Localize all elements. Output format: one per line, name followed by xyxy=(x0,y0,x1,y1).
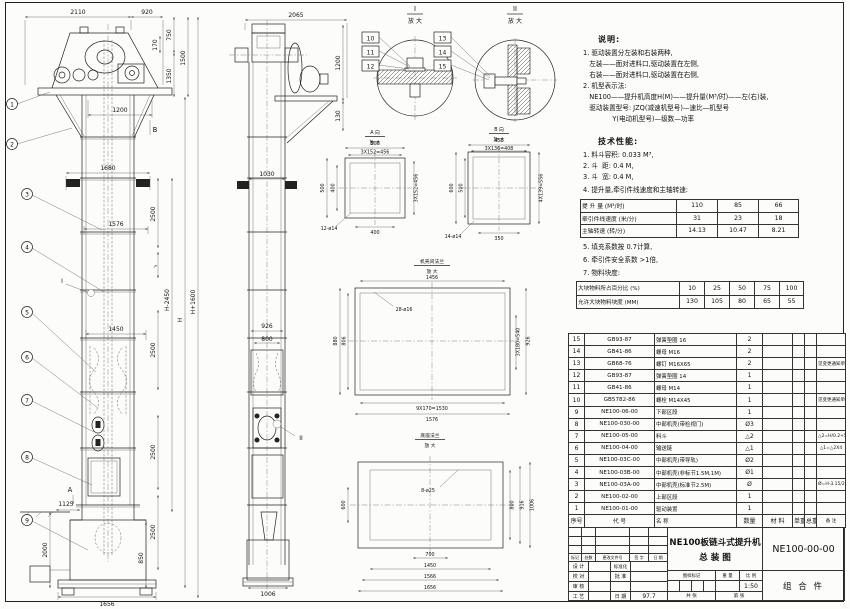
table-cell: 单重 xyxy=(793,515,805,527)
dim-label: 3X152=456 xyxy=(361,150,390,156)
table-cell xyxy=(763,346,793,358)
table-cell: 2 xyxy=(737,346,763,358)
table-cell: Ø xyxy=(737,479,763,491)
dim-label: 1456 xyxy=(426,275,438,281)
table-cell: 25 xyxy=(705,282,730,296)
table-row: 4NE100-03B-00中部机壳(非标节1.5M,1M)Ø1 xyxy=(569,467,846,479)
dim-label: 400 xyxy=(331,183,337,192)
table-cell: 名 称 xyxy=(655,515,737,527)
table-row: 7NE100-05-00料斗△2△2=H/0.2+5.75 xyxy=(569,430,846,442)
table-row: 12GB93-87弹簧垫圈 141 xyxy=(569,370,846,382)
table-row: 提 升 量 (M³/时)1108566 xyxy=(581,200,799,213)
casing-column xyxy=(66,24,150,562)
view-a-flange: A 向 放 大 500 3X152=456 500 400 3X152=456 … xyxy=(320,129,420,236)
dim-label: 806 xyxy=(342,336,348,345)
balloon-label: 12 xyxy=(367,64,375,71)
revision-cell xyxy=(568,527,582,554)
table-cell: 1 xyxy=(737,406,763,418)
table-row: 允许大块物料块度 (MM)130105806555 xyxy=(577,295,804,309)
balloon-label: 5 xyxy=(25,310,29,317)
view-title: 底座法兰 xyxy=(420,432,439,439)
table-cell: 中部机壳(标准节2.5M) xyxy=(655,479,737,491)
table-cell: 13 xyxy=(569,358,585,370)
table-cell xyxy=(763,406,793,418)
table-cell xyxy=(763,418,793,430)
table-cell: 6 xyxy=(569,442,585,454)
main-elevation-view: 2110 920 1200 B 1680 1576 1450 1125 2000… xyxy=(0,0,215,609)
table-cell: 66 xyxy=(759,200,799,213)
role-process: 工 艺 xyxy=(568,591,589,601)
table-cell: 85 xyxy=(718,200,759,213)
hole-callout: 8-ø25 xyxy=(421,488,435,494)
table-cell xyxy=(763,479,793,491)
date-value: 97.7 xyxy=(630,591,668,601)
table-cell xyxy=(817,418,846,430)
tech-item: 3. 斗 宽: 0.4 M, xyxy=(583,172,633,183)
table-cell xyxy=(805,358,817,370)
table-cell: 数量 xyxy=(737,515,763,527)
table-cell xyxy=(763,334,793,346)
table-row: 11GB41-86螺母 M141 xyxy=(569,382,846,394)
balloon-label: 4 xyxy=(25,245,29,252)
note-line: 左装——面对进料口,驱动装置在左侧, xyxy=(583,59,699,70)
dim-label: 1450 xyxy=(424,563,436,569)
table-cell: 10 xyxy=(680,282,705,296)
dim-label: 600 xyxy=(449,183,455,192)
note-line: 2. 机型表示法: xyxy=(583,81,627,92)
table-cell: Ø2 xyxy=(737,454,763,466)
table-cell: 65 xyxy=(755,295,780,309)
dim-label: 1030 xyxy=(259,171,274,178)
table-cell: 5 xyxy=(569,454,585,466)
table-cell: 材 料 xyxy=(763,515,793,527)
table-cell xyxy=(805,442,817,454)
table-row: 9NE100-06-00下部区段1 xyxy=(569,406,846,418)
table-row: 大块物料所占百分比 (%)10255075100 xyxy=(577,282,804,296)
table-row: 3NE100-03A-00中部机壳(标准节2.5M)ØØ=H-3.15/2.5 xyxy=(569,479,846,491)
dimensions: 2110 920 1200 B 1680 1576 1450 1125 2000… xyxy=(25,9,198,608)
dim-label: 500 xyxy=(459,183,465,192)
dim-label: 3X136=408 xyxy=(485,146,514,152)
table-cell: GB5782-86 xyxy=(585,394,655,406)
casing-flange-detail: 机壳间法兰 放 大 1456 28-ø16 880 806 3X180=540 … xyxy=(333,258,532,423)
view-b-flange: B 向 放 大 450 3X136=408 600 500 4X139=556 … xyxy=(445,126,545,242)
title-block: 标记 处数 更改文件号 签 字 日 期 设 计 标准化 校 对 批 准 审 核 … xyxy=(568,527,845,601)
table-cell: 2 xyxy=(737,358,763,370)
bom-table: 15GB93-87弹簧垫圈 16214GB41-86螺母 M16213GB68-… xyxy=(568,333,846,528)
table-cell: 螺母 M16 xyxy=(655,346,737,358)
table-cell: 牵引件线速度 (米/分) xyxy=(581,212,677,225)
table-cell: 1 xyxy=(737,382,763,394)
table-cell: 大块物料所占百分比 (%) xyxy=(577,282,680,296)
table-cell: 提 升 量 (M³/时) xyxy=(581,200,677,213)
note-line: Y(电动机型号)—级数—功率 xyxy=(583,114,694,125)
dim-label: 1576 xyxy=(426,417,438,423)
table-cell: 130 xyxy=(680,295,705,309)
product-title: NE100板链斗式提升机 xyxy=(669,536,760,548)
table-cell xyxy=(805,382,817,394)
dim-label: 1500 xyxy=(180,50,187,65)
table-cell xyxy=(793,430,805,442)
table-cell: 弹簧垫圈 14 xyxy=(655,370,737,382)
dim-label: 2000 xyxy=(42,542,49,557)
table-cell xyxy=(805,454,817,466)
table-cell xyxy=(763,430,793,442)
table-cell xyxy=(793,346,805,358)
table-cell: 总重 xyxy=(805,515,817,527)
dim-label: 1680 xyxy=(100,165,115,172)
table-cell: 中部机壳(非标节1.5M,1M) xyxy=(655,467,737,479)
hole-callout: 28-ø16 xyxy=(396,307,413,313)
table-cell: 80 xyxy=(730,295,755,309)
table-cell: 2 xyxy=(737,334,763,346)
dim-label: 2500 xyxy=(150,524,157,539)
view-title: A 向 xyxy=(370,129,380,136)
table-cell xyxy=(817,334,846,346)
notes-title: 说明: xyxy=(598,34,620,45)
table-cell xyxy=(805,418,817,430)
dim-label: 800 xyxy=(510,500,516,509)
head-section xyxy=(38,27,172,95)
table-cell: 105 xyxy=(705,295,730,309)
table-row: 6NE100-04-00输送链△1△1=△2X4 xyxy=(569,442,846,454)
tech-item: 2. 斗 距: 0.4 M, xyxy=(583,161,633,172)
table-cell xyxy=(793,442,805,454)
table-cell: 代 号 xyxy=(585,515,655,527)
table-cell: 料斗 xyxy=(655,430,737,442)
table-cell xyxy=(793,334,805,346)
table-cell: NE100-04-00 xyxy=(585,442,655,454)
table-cell xyxy=(817,467,846,479)
balloon-10-12: 10 11 12 xyxy=(362,32,410,71)
tech-item: 4. 提升量,牵引件线速度和主轴转速: xyxy=(583,185,688,196)
table-cell: 1 xyxy=(737,370,763,382)
dim-label: 1656 xyxy=(424,585,436,591)
table-cell: 75 xyxy=(755,282,780,296)
table-cell xyxy=(793,406,805,418)
hole-callout: 12-ø14 xyxy=(321,226,338,232)
table-cell xyxy=(805,346,817,358)
table-row: 2NE100-02-00上部区段1 xyxy=(569,491,846,503)
tech-item: 5. 填充系数按 0.7计算, xyxy=(583,242,652,253)
dim-label: 2110 xyxy=(70,9,85,16)
detail-views: I 放 大 10 11 12 II 放 大 xyxy=(318,0,565,609)
table-cell xyxy=(817,406,846,418)
table-cell: 8.21 xyxy=(759,225,799,238)
table-cell: NE100-05-00 xyxy=(585,430,655,442)
table-row: 15GB93-87弹簧垫圈 162 xyxy=(569,334,846,346)
table-cell xyxy=(817,503,846,515)
table-cell: 11 xyxy=(569,382,585,394)
table-cell: Ø3 xyxy=(737,418,763,430)
lump-size-table: 大块物料所占百分比 (%)10255075100允许大块物料块度 (MM)130… xyxy=(576,281,804,309)
table-cell: 10.47 xyxy=(718,225,759,238)
casing-column xyxy=(237,20,297,590)
tech-item: 1. 料斗容积: 0.033 M³, xyxy=(583,150,653,161)
balloon-label: 13 xyxy=(439,36,447,43)
hole-callout: 14-ø14 xyxy=(445,234,462,240)
note-line: NE100——提升机高度H(M)——提升量(M³/时)——左(右)装, xyxy=(583,92,768,103)
table-cell xyxy=(805,503,817,515)
balloon-label: 1 xyxy=(10,102,14,109)
table-cell: 1 xyxy=(569,503,585,515)
table-cell: NE100-01-00 xyxy=(585,503,655,515)
table-cell: 见变更通知单 xyxy=(817,394,846,406)
dim-label: 3X180=540 xyxy=(516,328,522,357)
table-cell: 9 xyxy=(569,406,585,418)
dim-label: H xyxy=(177,318,184,323)
table-cell: 螺栓 M14X45 xyxy=(655,394,737,406)
balloon-label: 2 xyxy=(10,142,14,149)
table-cell: Ø1 xyxy=(737,467,763,479)
table-cell: 3 xyxy=(569,479,585,491)
part-class: 组 合 件 xyxy=(762,570,845,601)
detail-ii-view: II 放 大 13 14 15 xyxy=(434,5,557,122)
table-cell: 驱动装置 xyxy=(655,503,737,515)
table-cell: 序号 xyxy=(569,515,585,527)
boot-section xyxy=(243,540,293,586)
dim-label: 1566 xyxy=(424,574,436,580)
product-title-cell: NE100板链斗式提升机 总 装 图 xyxy=(667,527,763,571)
table-cell xyxy=(763,467,793,479)
table-cell xyxy=(793,454,805,466)
table-cell: 14.13 xyxy=(677,225,718,238)
table-row: 13GB68-76螺钉 M16X652见变更通知单 xyxy=(569,358,846,370)
table-cell: △1=△2X4 xyxy=(817,442,846,454)
head-braces xyxy=(56,95,154,138)
table-cell xyxy=(763,394,793,406)
table-cell xyxy=(805,394,817,406)
table-cell: GB41-86 xyxy=(585,346,655,358)
table-cell: 18 xyxy=(759,212,799,225)
view-title: B 向 xyxy=(494,126,504,133)
table-cell xyxy=(817,454,846,466)
table-cell: 50 xyxy=(730,282,755,296)
table-row: 序号代 号名 称数量材 料单重总重备 注 xyxy=(569,515,846,527)
dim-label: 2500 xyxy=(150,342,157,357)
tech-item: 7. 物料块度: xyxy=(583,268,620,279)
performance-table: 提 升 量 (M³/时)1108566牵引件线速度 (米/分)312318主轴转… xyxy=(580,199,799,238)
balloon-label: 10 xyxy=(367,36,375,43)
dim-label: H+1600 xyxy=(190,289,197,314)
table-cell xyxy=(805,491,817,503)
table-cell xyxy=(793,491,805,503)
table-row: 8NE100-030-00中部机壳(带检视门)Ø3 xyxy=(569,418,846,430)
table-cell xyxy=(793,503,805,515)
dim-label: 1006 xyxy=(260,591,275,598)
view-subtitle: 放 大 xyxy=(426,268,437,275)
table-cell xyxy=(805,467,817,479)
table-cell: 14 xyxy=(569,346,585,358)
table-cell: GB93-87 xyxy=(585,334,655,346)
detail-title: I xyxy=(414,5,416,13)
section-marker-a: A xyxy=(68,486,73,494)
table-cell: 31 xyxy=(677,212,718,225)
table-cell: 螺母 M14 xyxy=(655,382,737,394)
table-cell xyxy=(793,370,805,382)
revision-cell xyxy=(581,527,596,554)
table-cell: △2=H/0.2+5.75 xyxy=(817,430,846,442)
pitch-mark: ↗ xyxy=(153,265,157,270)
table-cell: Ø=H-3.15/2.5 xyxy=(817,479,846,491)
drawing-sheet: 2110 920 1200 B 1680 1576 1450 1125 2000… xyxy=(0,0,850,609)
table-cell xyxy=(763,454,793,466)
table-cell xyxy=(793,479,805,491)
table-cell: 110 xyxy=(677,200,718,213)
dim-label: 700 xyxy=(425,552,434,558)
table-cell: 主轴转速 (转/分) xyxy=(581,225,677,238)
balloon-label: 9 xyxy=(25,518,29,525)
table-cell xyxy=(793,358,805,370)
balloon-label: 8 xyxy=(25,455,29,462)
dim-label: 9X170=1530 xyxy=(416,406,448,412)
table-cell xyxy=(793,382,805,394)
table-row: 主轴转速 (转/分)14.1310.478.21 xyxy=(581,225,799,238)
table-cell: △2 xyxy=(737,430,763,442)
table-cell: 23 xyxy=(718,212,759,225)
dim-label: 750 xyxy=(166,29,173,41)
table-cell: 8 xyxy=(569,418,585,430)
view-title: 机壳间法兰 xyxy=(420,258,444,265)
dim-label: 916 xyxy=(520,500,526,509)
note-line: 1. 驱动装置分左装和右装两种, xyxy=(583,48,673,59)
section-marker-b: B xyxy=(153,126,158,134)
dim-label: 1200 xyxy=(112,107,127,114)
detail-marker-ii: II xyxy=(299,435,303,442)
revision-cell xyxy=(648,527,668,554)
dim-label: 450 xyxy=(494,138,503,144)
dim-label: 500 xyxy=(370,141,379,147)
table-cell: NE100-02-00 xyxy=(585,491,655,503)
dim-label: 1350 xyxy=(166,68,173,83)
table-cell: 7 xyxy=(569,430,585,442)
table-cell: 上部区段 xyxy=(655,491,737,503)
detail-marker-i: I xyxy=(61,278,63,285)
dim-label: 500 xyxy=(320,183,326,192)
table-cell: NE100-06-00 xyxy=(585,406,655,418)
table-cell xyxy=(805,406,817,418)
dim-label: 2500 xyxy=(150,206,157,221)
dim-label: 1450 xyxy=(108,326,123,333)
table-cell xyxy=(793,394,805,406)
table-cell: 15 xyxy=(569,334,585,346)
dim-label: 2065 xyxy=(288,12,303,19)
table-cell xyxy=(763,370,793,382)
dim-label: 880 xyxy=(333,336,339,345)
table-cell: NE100-03A-00 xyxy=(585,479,655,491)
date-label: 日 期 xyxy=(610,591,631,601)
table-cell: 输送链 xyxy=(655,442,737,454)
table-cell xyxy=(817,382,846,394)
balloon-callouts: 1 2 3 4 I 5 6 7 8 9 A xyxy=(7,92,105,550)
dim-label: 1656 xyxy=(99,601,114,608)
table-row: 14GB41-86螺母 M162 xyxy=(569,346,846,358)
sheet-no-label: 第 张 xyxy=(715,591,763,601)
table-cell: 1 xyxy=(737,503,763,515)
base-flange-detail: 底座法兰 放 大 8-ø25 600 800 916 1006 700 1450… xyxy=(341,432,536,591)
table-cell xyxy=(805,430,817,442)
table-cell: 螺钉 M16X65 xyxy=(655,358,737,370)
table-cell xyxy=(763,491,793,503)
tech-item: 6. 牵引件安全系数 >1倍, xyxy=(583,255,658,266)
balloon-label: 6 xyxy=(25,355,29,362)
detail-title: II xyxy=(513,5,517,13)
dim-label: 1125 xyxy=(58,501,73,508)
table-cell: 2 xyxy=(569,491,585,503)
table-cell: 备 注 xyxy=(817,515,846,527)
table-cell xyxy=(817,346,846,358)
revision-cell xyxy=(595,527,630,554)
table-cell xyxy=(763,503,793,515)
table-row: 牵引件线速度 (米/分)312318 xyxy=(581,212,799,225)
table-cell xyxy=(817,491,846,503)
revision-cell xyxy=(629,527,649,554)
table-cell: 4 xyxy=(569,467,585,479)
table-cell: 下部区段 xyxy=(655,406,737,418)
table-cell xyxy=(817,370,846,382)
table-cell xyxy=(763,382,793,394)
table-cell: 中部机壳(带检视门) xyxy=(655,418,737,430)
table-row: 1NE100-01-00驱动装置1 xyxy=(569,503,846,515)
table-cell: 12 xyxy=(569,370,585,382)
view-subtitle: 放 大 xyxy=(424,442,435,449)
balloon-label: 14 xyxy=(439,50,447,57)
table-cell: NE100-030-00 xyxy=(585,418,655,430)
table-cell: GB68-76 xyxy=(585,358,655,370)
table-cell xyxy=(763,442,793,454)
table-cell: 55 xyxy=(780,295,804,309)
sheets-total-label: 共 张 xyxy=(667,591,716,601)
sign-cell xyxy=(588,591,611,601)
table-cell: NE100-03C-00 xyxy=(585,454,655,466)
table-cell: GB41-86 xyxy=(585,382,655,394)
table-cell: 见变更通知单 xyxy=(817,358,846,370)
table-cell xyxy=(805,370,817,382)
dim-label: 850 xyxy=(138,552,145,564)
table-cell xyxy=(793,467,805,479)
dim-label: 4X139=556 xyxy=(539,174,545,203)
dim-label: 3X152=456 xyxy=(414,174,420,203)
detail-subtitle: 放 大 xyxy=(408,17,422,25)
table-cell: △1 xyxy=(737,442,763,454)
balloon-label: 11 xyxy=(367,50,375,57)
dim-label: 1006 xyxy=(530,499,536,511)
table-cell: 中部机壳(带导轨) xyxy=(655,454,737,466)
dim-label: 800 xyxy=(261,336,273,343)
table-cell: 100 xyxy=(780,282,804,296)
note-line: 右装——面对进料口,驱动装置在右侧, xyxy=(583,70,699,81)
table-cell: 1 xyxy=(737,394,763,406)
dim-label: 1576 xyxy=(108,221,123,228)
balloon-label: 15 xyxy=(439,64,447,71)
dim-label: 920 xyxy=(141,9,153,16)
drawing-type: 总 装 图 xyxy=(699,551,731,563)
table-cell: NE100-03B-00 xyxy=(585,467,655,479)
table-cell xyxy=(805,479,817,491)
balloon-label: 7 xyxy=(25,398,29,405)
detail-subtitle: 放 大 xyxy=(508,17,522,25)
table-cell: 弹簧垫圈 16 xyxy=(655,334,737,346)
dim-label: 350 xyxy=(494,236,503,242)
table-row: 5NE100-03C-00中部机壳(带导轨)Ø2 xyxy=(569,454,846,466)
table-cell: GB93-87 xyxy=(585,370,655,382)
dim-label: 600 xyxy=(341,500,347,509)
note-line: 驱动装置型号: JZQ(减速机型号)—速比—机型号 xyxy=(583,103,729,114)
dim-label: H-2450 xyxy=(164,289,171,311)
table-cell: 10 xyxy=(569,394,585,406)
drawing-number: NE100-00-00 xyxy=(762,527,845,571)
dim-label: 926 xyxy=(526,336,532,345)
